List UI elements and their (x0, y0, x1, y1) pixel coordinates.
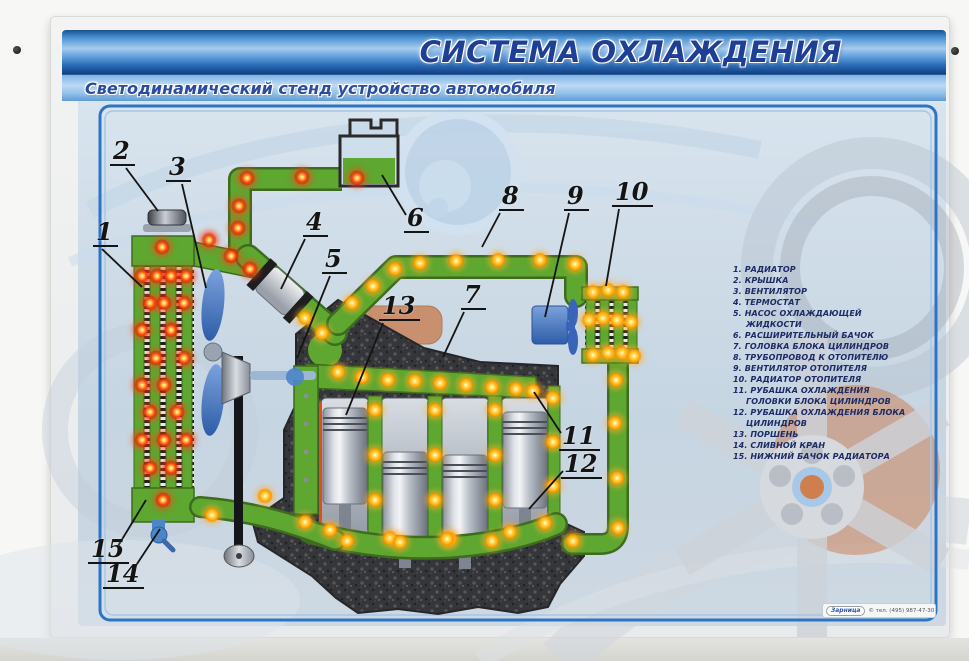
legend-item: 1. РАДИАТОР (733, 264, 911, 275)
subtitle-banner: Светодинамический стенд устройство автом… (62, 74, 946, 101)
radiator-top-tank (132, 236, 194, 266)
legend-item: 14. СЛИВНОЙ КРАН (733, 440, 911, 451)
legend-list: 1. РАДИАТОР2. КРЫШКА3. ВЕНТИЛЯТОР4. ТЕРМ… (733, 264, 911, 462)
title-banner: СИСТЕМА ОХЛАЖДЕНИЯ (62, 30, 946, 74)
legend-item: 4. ТЕРМОСТАТ (733, 297, 911, 308)
legend-item: 8. ТРУБОПРОВОД К ОТОПИТЕЛЮ (733, 352, 911, 363)
legend-item: 7. ГОЛОВКА БЛОКА ЦИЛИНДРОВ (733, 341, 911, 352)
legend-item: 13. ПОРШЕНЬ (733, 429, 911, 440)
legend-item: 11. РУБАШКА ОХЛАЖДЕНИЯ ГОЛОВКИ БЛОКА ЦИЛ… (733, 385, 911, 407)
page-title: СИСТЕМА ОХЛАЖДЕНИЯ (420, 35, 946, 69)
legend-item: 5. НАСОС ОХЛАЖДАЮЩЕЙ ЖИДКОСТИ (733, 308, 911, 330)
manufacturer-plate: Зарница © тел. (495) 987-47-30 (822, 603, 936, 618)
page-subtitle: Светодинамический стенд устройство автом… (62, 79, 556, 98)
manufacturer-phone: © тел. (495) 987-47-30 (868, 608, 934, 614)
legend: 1. РАДИАТОР2. КРЫШКА3. ВЕНТИЛЯТОР4. ТЕРМ… (733, 264, 911, 462)
legend-item: 10. РАДИАТОР ОТОПИТЕЛЯ (733, 374, 911, 385)
legend-item: 9. ВЕНТИЛЯТОР ОТОПИТЕЛЯ (733, 363, 911, 374)
legend-item: 15. НИЖНИЙ БАЧОК РАДИАТОРА (733, 451, 911, 462)
heater-radiator (582, 287, 638, 363)
water-pump (286, 368, 304, 386)
legend-item: 12. РУБАШКА ОХЛАЖДЕНИЯ БЛОКА ЦИЛИНДРОВ (733, 407, 911, 429)
brand-logo: Зарница (826, 606, 865, 616)
legend-item: 6. РАСШИРИТЕЛЬНЫЙ БАЧОК (733, 330, 911, 341)
legend-item: 2. КРЫШКА (733, 275, 911, 286)
legend-item: 3. ВЕНТИЛЯТОР (733, 286, 911, 297)
radiator-bottom-tank (132, 488, 194, 522)
